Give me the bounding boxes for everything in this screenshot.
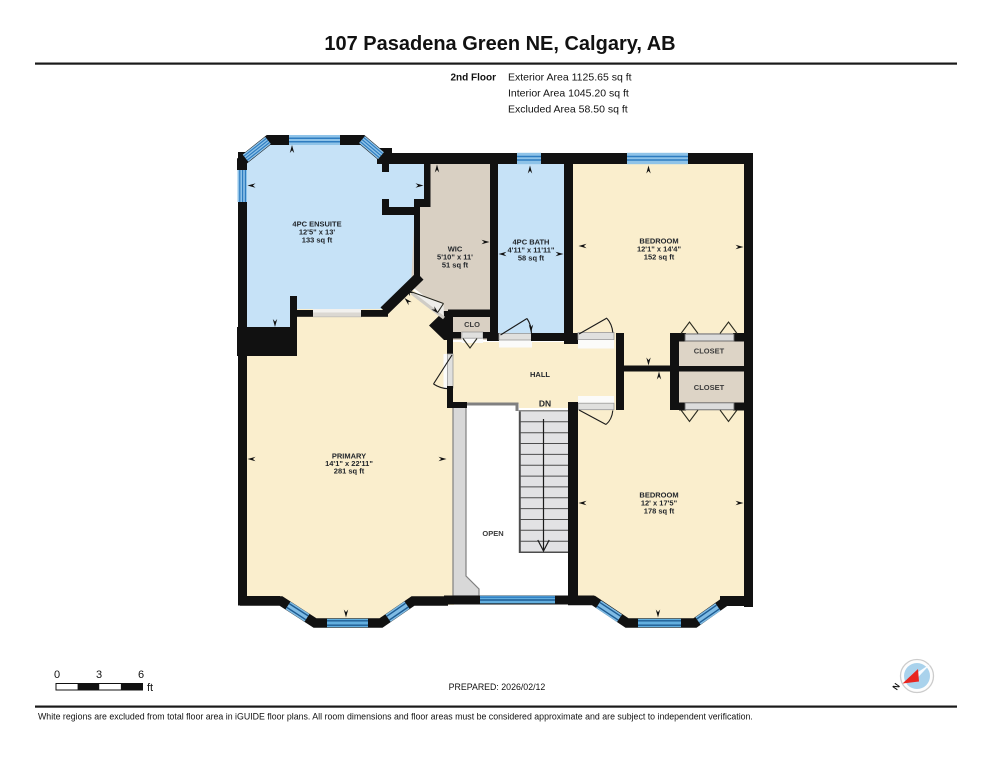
- svg-text:2nd Floor: 2nd Floor: [450, 73, 496, 84]
- svg-text:Exterior Area 1125.65 sq ft: Exterior Area 1125.65 sq ft: [508, 72, 632, 84]
- svg-text:6: 6: [138, 669, 144, 681]
- svg-text:178 sq ft: 178 sq ft: [644, 507, 675, 516]
- svg-text:ft: ft: [147, 682, 153, 694]
- svg-text:CLOSET: CLOSET: [694, 347, 725, 356]
- svg-text:3: 3: [96, 669, 102, 681]
- svg-text:51 sq ft: 51 sq ft: [442, 261, 469, 270]
- svg-text:HALL: HALL: [530, 370, 550, 379]
- svg-text:White regions are excluded fro: White regions are excluded from total fl…: [38, 712, 753, 722]
- svg-text:CLOSET: CLOSET: [694, 383, 725, 392]
- svg-text:OPEN: OPEN: [482, 529, 503, 538]
- svg-text:133 sq ft: 133 sq ft: [302, 236, 333, 245]
- svg-text:CLO: CLO: [464, 320, 480, 329]
- svg-text:58 sq ft: 58 sq ft: [518, 254, 545, 263]
- svg-text:0: 0: [54, 669, 60, 681]
- svg-text:Interior Area 1045.20 sq ft: Interior Area 1045.20 sq ft: [508, 88, 629, 100]
- svg-text:281 sq ft: 281 sq ft: [334, 467, 365, 476]
- svg-text:152 sq ft: 152 sq ft: [644, 253, 675, 262]
- svg-text:107 Pasadena Green NE, Calgary: 107 Pasadena Green NE, Calgary, AB: [324, 33, 675, 55]
- svg-text:Excluded Area 58.50 sq ft: Excluded Area 58.50 sq ft: [508, 104, 628, 116]
- svg-text:DN: DN: [539, 399, 551, 409]
- svg-text:PREPARED: 2026/02/12: PREPARED: 2026/02/12: [449, 682, 546, 692]
